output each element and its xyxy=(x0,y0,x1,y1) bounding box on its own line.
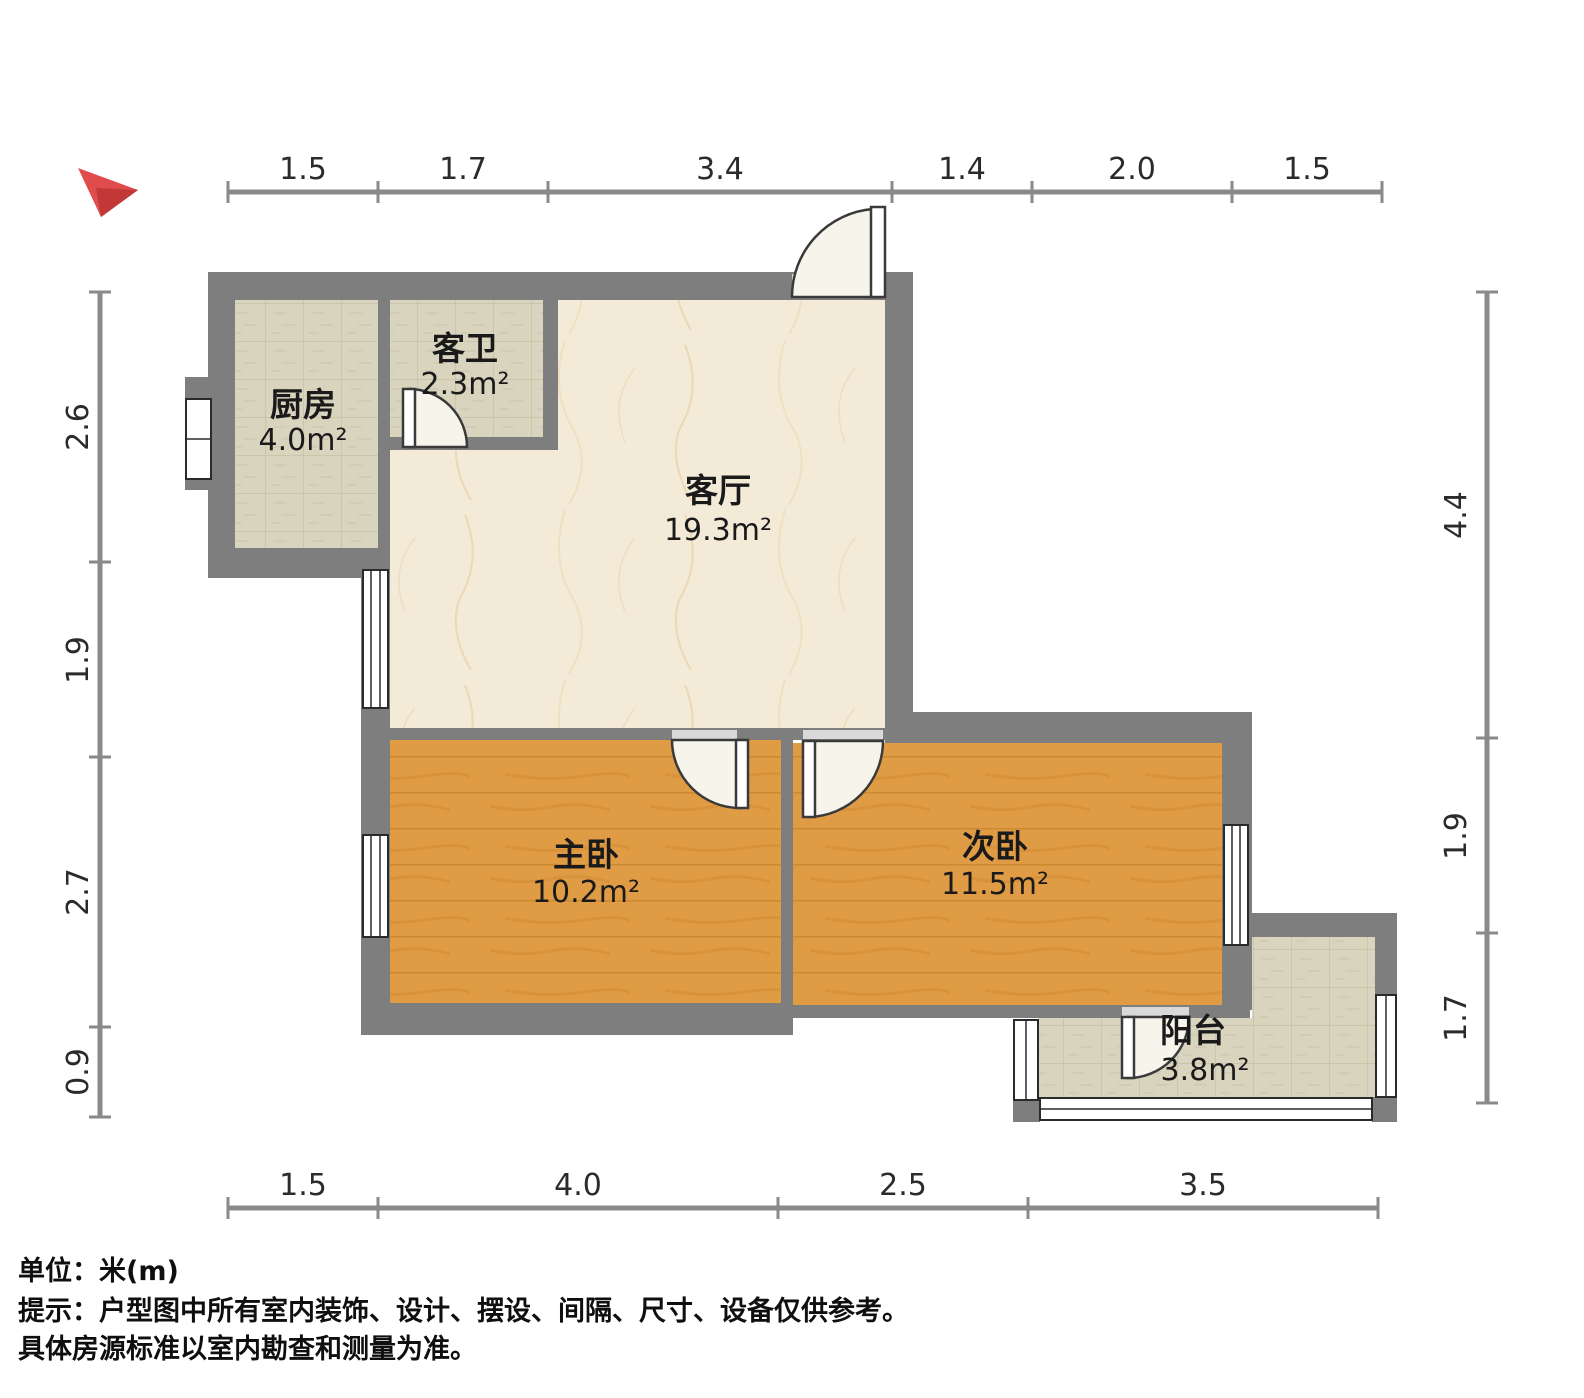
balcony-label: 阳台 xyxy=(1160,1011,1226,1050)
dim-value: 1.5 xyxy=(279,152,327,187)
dim-value: 2.7 xyxy=(61,868,96,916)
dim-value: 0.9 xyxy=(61,1048,96,1096)
dim-value: 1.7 xyxy=(1439,994,1474,1042)
dim-value: 3.4 xyxy=(696,152,744,187)
second-bedroom-right-window xyxy=(1224,825,1248,945)
bathroom-label: 客卫 xyxy=(432,329,498,368)
dim-value: 1.4 xyxy=(938,152,986,187)
entry-door-swing xyxy=(792,209,880,297)
wall-kitchen-left xyxy=(208,272,235,578)
wall-bottom-ext xyxy=(361,1003,793,1035)
bathroom-area: 2.3m² xyxy=(421,367,510,402)
dim-value: 1.9 xyxy=(61,636,96,684)
dim-value: 2.0 xyxy=(1108,152,1156,187)
footer-notes: 单位：米(m) 提示：户型图中所有室内装饰、设计、摆设、间隔、尺寸、设备仅供参考… xyxy=(18,1255,909,1365)
dim-value: 1.7 xyxy=(439,152,487,187)
dim-value: 3.5 xyxy=(1179,1168,1227,1203)
dim-value: 1.9 xyxy=(1439,812,1474,860)
wall-balcony-post-left xyxy=(1013,1098,1040,1122)
dimension-left: 2.6 1.9 2.7 0.9 xyxy=(61,292,111,1117)
balcony-area: 3.8m² xyxy=(1161,1053,1250,1088)
wall-bedrooms-divider xyxy=(781,740,793,1005)
bath-door-leaf xyxy=(403,389,415,447)
kitchen-label: 厨房 xyxy=(270,385,336,424)
dim-value: 1.5 xyxy=(1283,152,1331,187)
living-room-label: 客厅 xyxy=(685,471,751,510)
dim-value: 4.0 xyxy=(554,1168,602,1203)
master-left-window xyxy=(363,835,388,937)
second-bedroom-label: 次卧 xyxy=(962,827,1028,866)
master-door-leaf xyxy=(736,740,748,808)
wall-kitchen-bath-divider xyxy=(378,300,390,548)
kitchen-area: 4.0m² xyxy=(259,423,348,458)
disclaimer-line1: 提示：户型图中所有室内装饰、设计、摆设、间隔、尺寸、设备仅供参考。 xyxy=(18,1295,909,1327)
master-door-opening xyxy=(672,730,737,739)
dim-value: 2.6 xyxy=(61,403,96,451)
master-bedroom-area: 10.2m² xyxy=(532,875,640,910)
dimension-top: 1.5 1.7 3.4 1.4 2.0 1.5 xyxy=(228,152,1382,203)
north-arrow-shade xyxy=(96,188,138,217)
disclaimer-line2: 具体房源标准以室内勘查和测量为准。 xyxy=(18,1333,477,1365)
wall-bedroom-top-ext xyxy=(885,712,1252,743)
second-bedroom-door-opening xyxy=(803,730,883,739)
dim-value: 2.5 xyxy=(879,1168,927,1203)
living-left-window xyxy=(363,570,388,708)
dimension-right: 4.4 1.9 1.7 xyxy=(1439,292,1498,1103)
north-arrow-icon xyxy=(78,168,138,217)
dim-value: 4.4 xyxy=(1439,491,1474,539)
entry-door-leaf xyxy=(871,207,885,297)
dim-value: 1.5 xyxy=(279,1168,327,1203)
living-room-area: 19.3m² xyxy=(664,513,772,548)
dimension-bottom: 1.5 4.0 2.5 3.5 xyxy=(228,1168,1378,1219)
floor-plan-page: 厨房 4.0m² 客卫 2.3m² 客厅 19.3m² 主卧 10.2m² 次卧… xyxy=(0,0,1584,1398)
wall-balcony-post-right xyxy=(1372,1097,1397,1122)
wall-living-right xyxy=(885,272,913,743)
wall-balcony-right xyxy=(1375,937,1397,997)
balcony-door-leaf xyxy=(1122,1017,1134,1078)
master-bedroom-label: 主卧 xyxy=(553,835,619,874)
second-bedroom-door-leaf xyxy=(803,741,815,817)
unit-note: 单位：米(m) xyxy=(18,1255,179,1287)
floor-plan-svg: 厨房 4.0m² 客卫 2.3m² 客厅 19.3m² 主卧 10.2m² 次卧… xyxy=(0,0,1584,1398)
wall-bath-right xyxy=(543,300,558,450)
second-bedroom-area: 11.5m² xyxy=(941,867,1049,902)
wall-balcony-top xyxy=(1247,913,1397,937)
